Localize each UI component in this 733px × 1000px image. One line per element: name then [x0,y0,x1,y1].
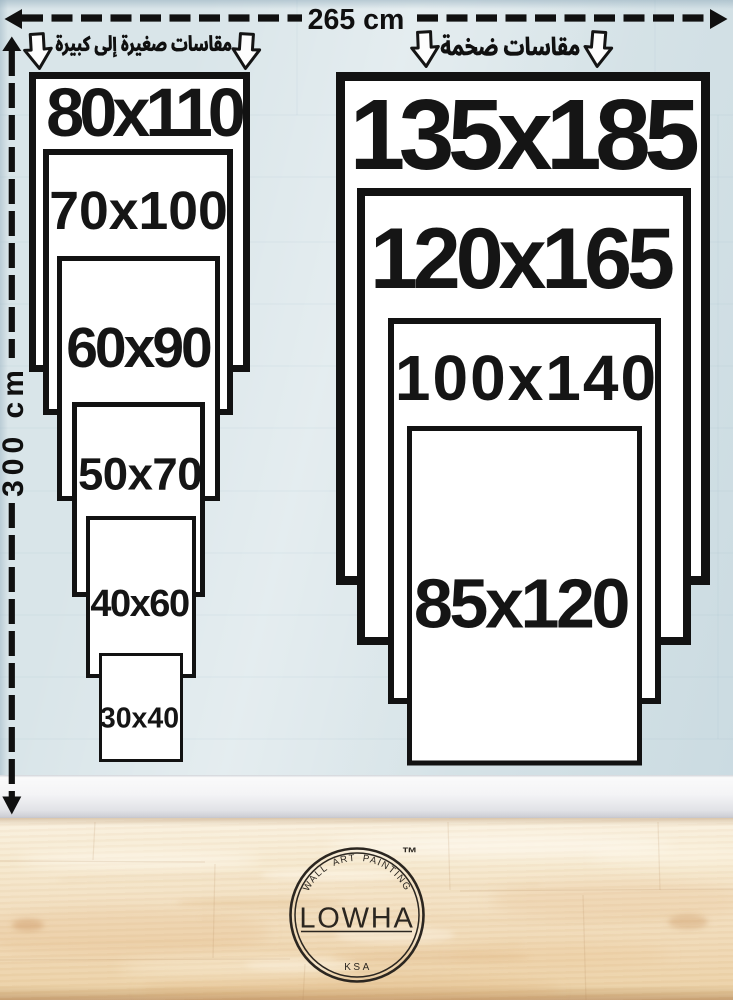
svg-text:LOWHA: LOWHA [299,903,414,935]
svg-text:85x120: 85x120 [414,565,629,643]
svg-text:120x165: 120x165 [370,211,673,307]
svg-text:300 cm: 300 cm [0,365,30,497]
svg-text:135x185: 135x185 [350,79,698,191]
svg-text:KSA: KSA [344,962,372,973]
svg-text:265 cm: 265 cm [308,4,405,36]
svg-text:30x40: 30x40 [100,703,179,735]
svg-text:60x90: 60x90 [66,316,211,380]
svg-text:50x70: 50x70 [78,449,202,500]
svg-text:70x100: 70x100 [49,182,228,241]
svg-text:™: ™ [402,845,418,862]
svg-text:40x60: 40x60 [90,583,189,625]
svg-text:80x110: 80x110 [46,74,244,151]
svg-text:100x140: 100x140 [395,342,658,414]
